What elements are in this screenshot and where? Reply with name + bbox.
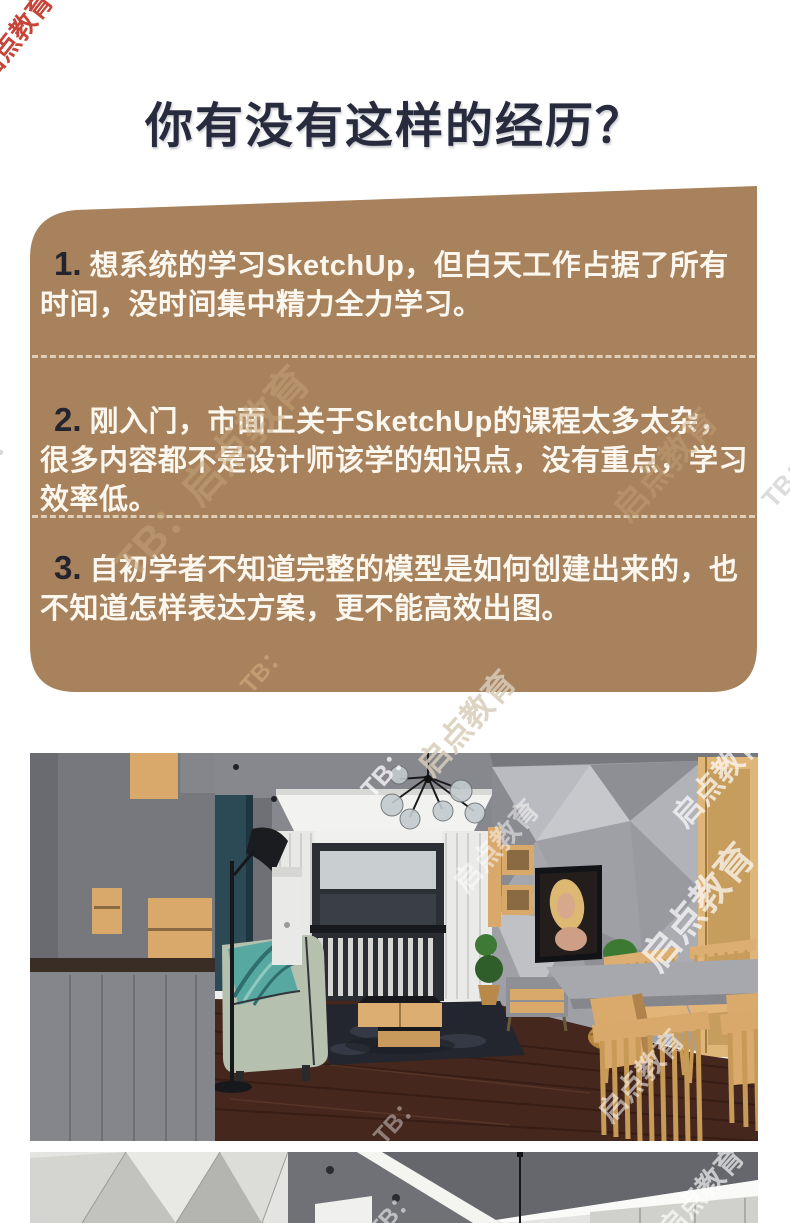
pain-point-2: 2.刚入门，市面上关于SketchUp的课程太多太杂，很多内容都不是设计师该学的…	[40, 400, 749, 520]
dashed-separator-2	[32, 515, 755, 518]
render-strip-photo	[30, 1152, 758, 1223]
pain-point-3-text: 自初学者不知道完整的模型是如何创建出来的，也不知道怎样表达方案，更不能高效出图。	[40, 554, 739, 625]
pain-point-1-number: 1.	[54, 245, 90, 282]
render-strip-scene	[30, 1152, 758, 1223]
pain-point-3: 3.自初学者不知道完整的模型是如何创建出来的，也不知道怎样表达方案，更不能高效出…	[40, 548, 749, 629]
living-room-scene	[30, 753, 758, 1141]
promo-page: 启点教育 你有没有这样的经历？ 1.想系统的学习SketchUp，但白天工作占据…	[0, 0, 790, 1223]
pain-points-card: 1.想系统的学习SketchUp，但白天工作占据了所有时间，没时间集中精力全力学…	[30, 186, 757, 692]
corner-red-watermark: 启点教育	[0, 0, 61, 88]
living-room-photo	[30, 753, 758, 1141]
pain-point-2-number: 2.	[54, 401, 90, 438]
dining-chairs-near	[592, 1009, 758, 1141]
page-title: 你有没有这样的经历？	[0, 86, 790, 156]
wardrobe	[30, 753, 215, 1141]
pain-point-1-text: 想系统的学习SketchUp，但白天工作占据了所有时间，没时间集中精力全力学习。	[40, 250, 729, 321]
tv-screen	[535, 865, 602, 963]
pain-point-3-number: 3.	[54, 549, 90, 586]
watermark: TB：	[0, 417, 23, 492]
pain-point-2-text: 刚入门，市面上关于SketchUp的课程太多太杂，很多内容都不是设计师该学的知识…	[40, 406, 748, 516]
watermark: TB：	[752, 445, 790, 515]
dashed-separator-1	[32, 355, 755, 358]
pain-point-1: 1.想系统的学习SketchUp，但白天工作占据了所有时间，没时间集中精力全力学…	[40, 244, 749, 325]
